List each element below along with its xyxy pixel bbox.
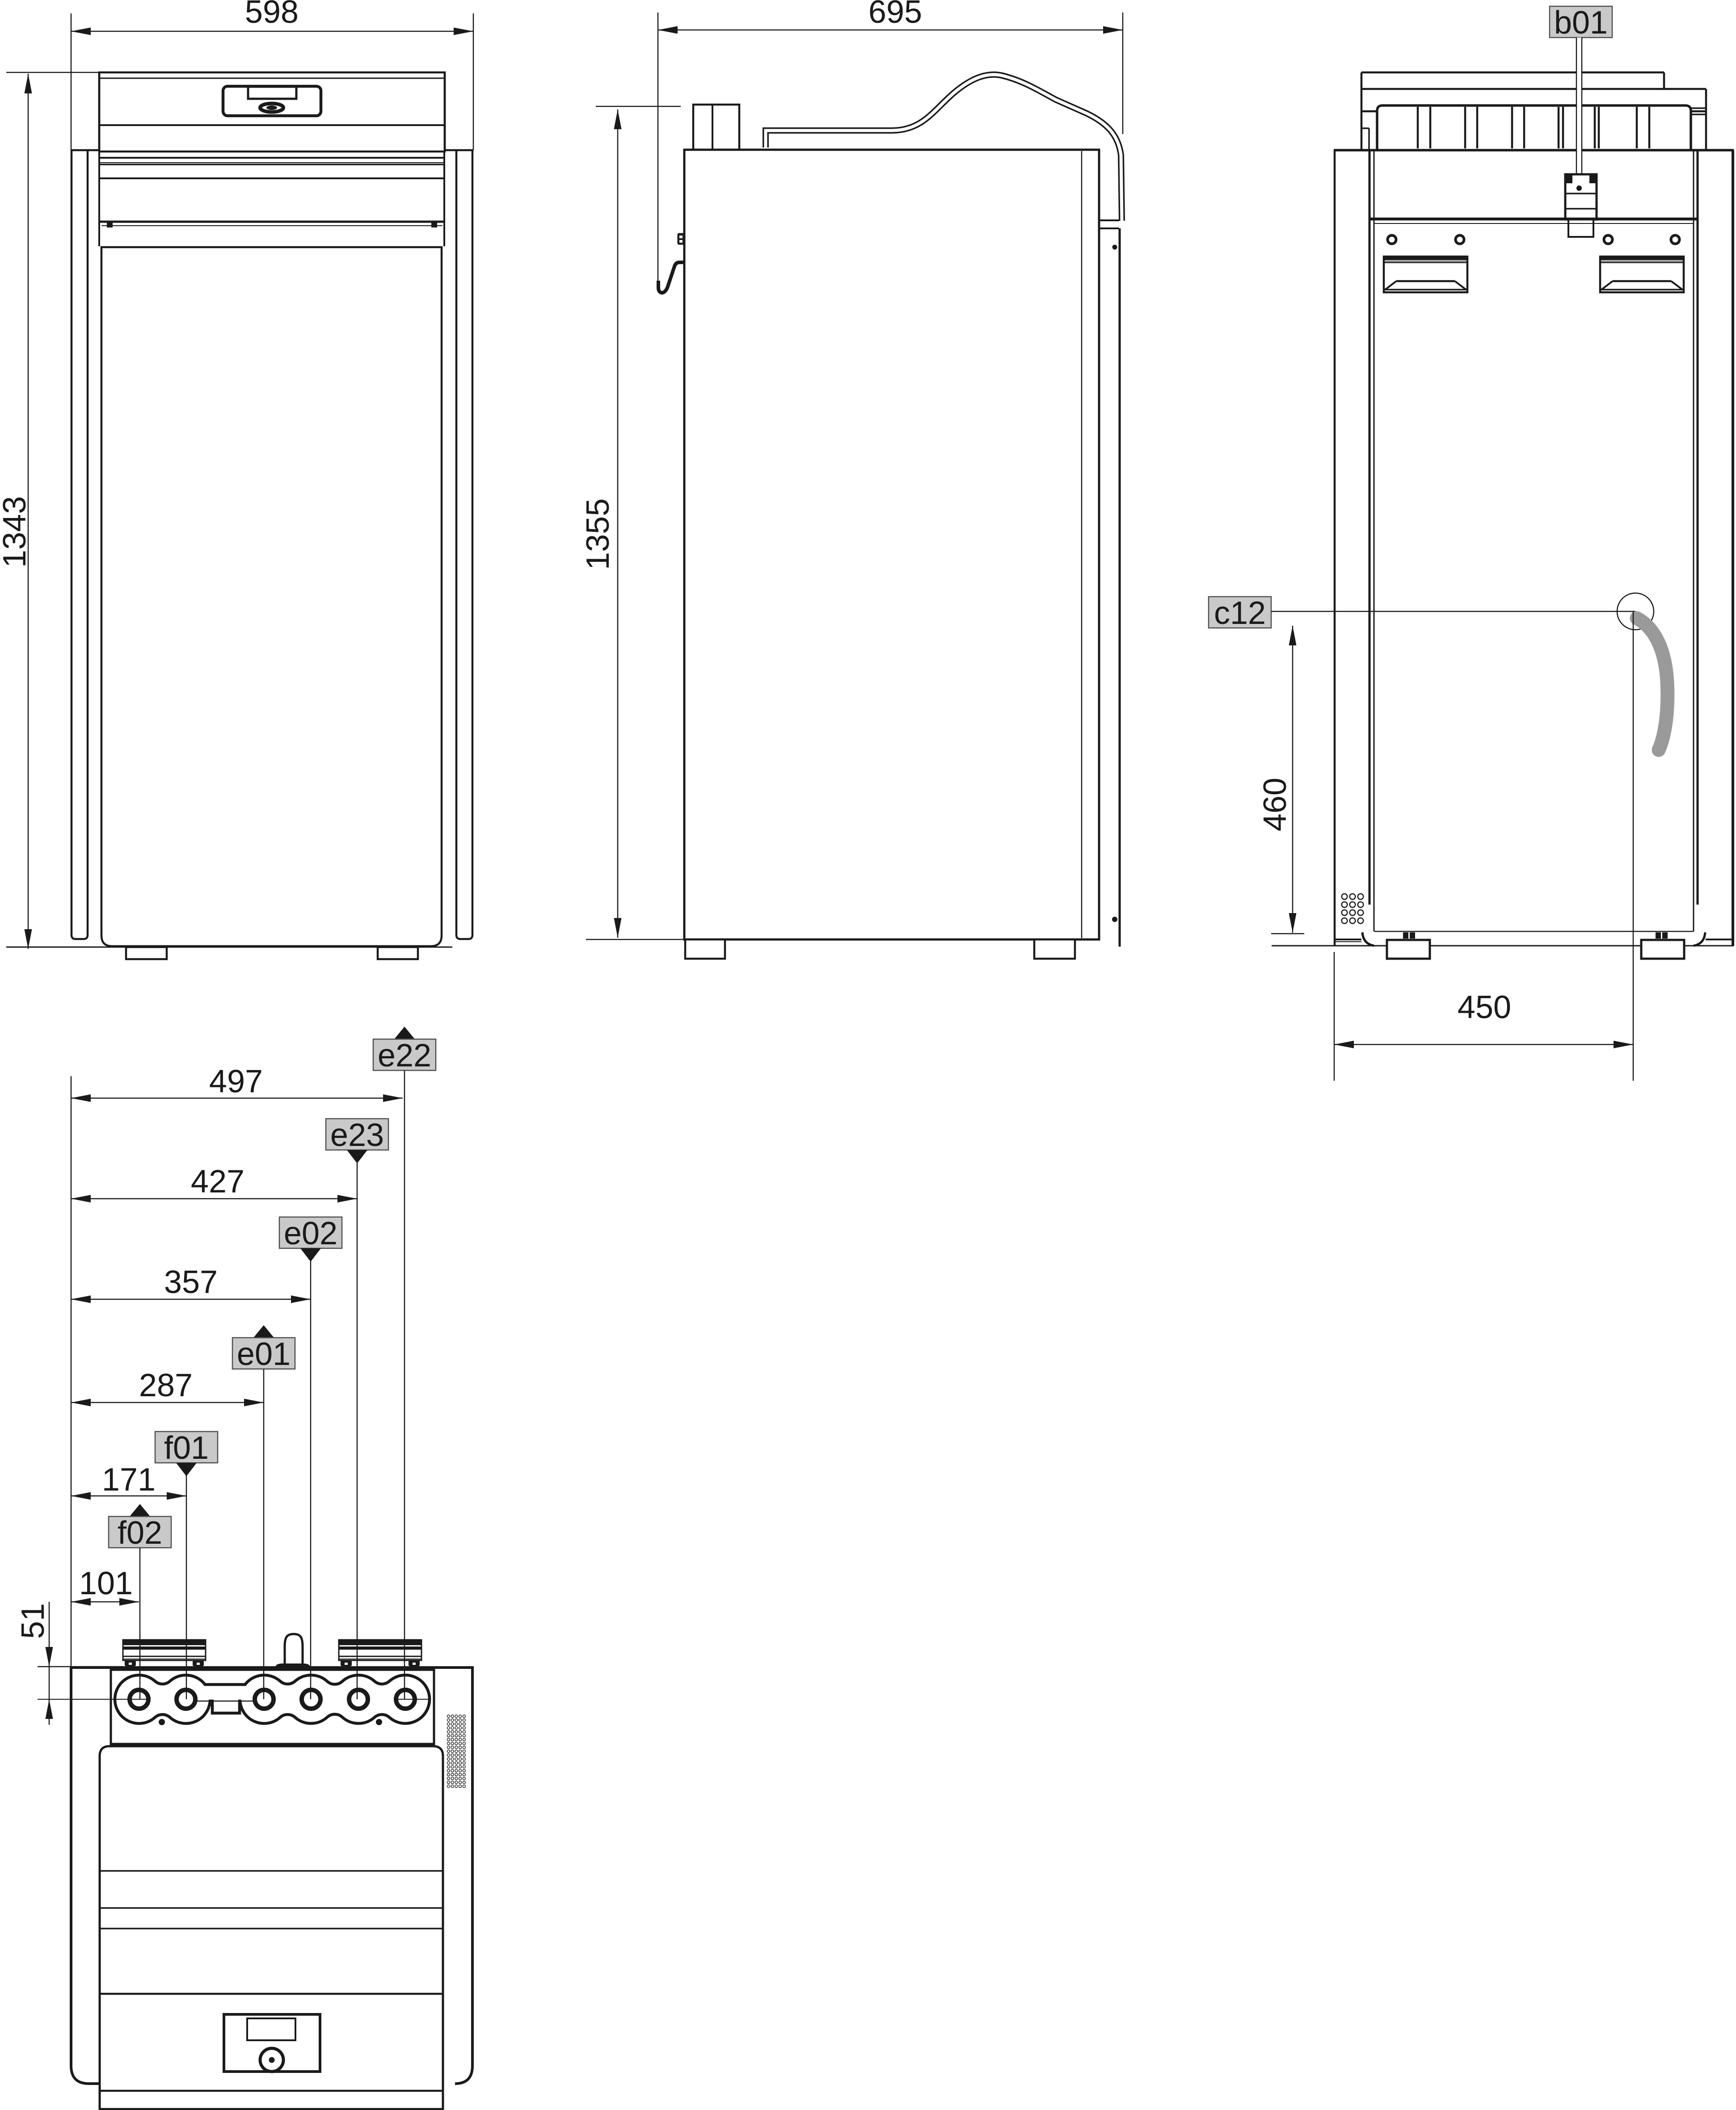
svg-text:497: 497 bbox=[209, 1064, 263, 1099]
svg-text:e02: e02 bbox=[284, 1216, 337, 1251]
svg-text:b01: b01 bbox=[1554, 5, 1608, 41]
svg-text:171: 171 bbox=[102, 1462, 156, 1498]
svg-text:460: 460 bbox=[1257, 778, 1293, 831]
svg-text:695: 695 bbox=[868, 0, 922, 30]
svg-text:e23: e23 bbox=[330, 1117, 384, 1153]
svg-text:f02: f02 bbox=[118, 1515, 162, 1551]
svg-text:e01: e01 bbox=[237, 1336, 291, 1372]
svg-text:598: 598 bbox=[245, 0, 299, 30]
svg-text:357: 357 bbox=[164, 1264, 218, 1300]
svg-text:287: 287 bbox=[139, 1368, 193, 1403]
svg-text:101: 101 bbox=[79, 1566, 133, 1601]
svg-text:c12: c12 bbox=[1214, 595, 1266, 631]
svg-text:51: 51 bbox=[15, 1603, 51, 1639]
svg-text:e22: e22 bbox=[378, 1038, 431, 1074]
svg-text:427: 427 bbox=[191, 1164, 244, 1200]
svg-text:f01: f01 bbox=[164, 1430, 209, 1466]
svg-text:1355: 1355 bbox=[580, 498, 616, 570]
svg-text:450: 450 bbox=[1458, 990, 1511, 1025]
